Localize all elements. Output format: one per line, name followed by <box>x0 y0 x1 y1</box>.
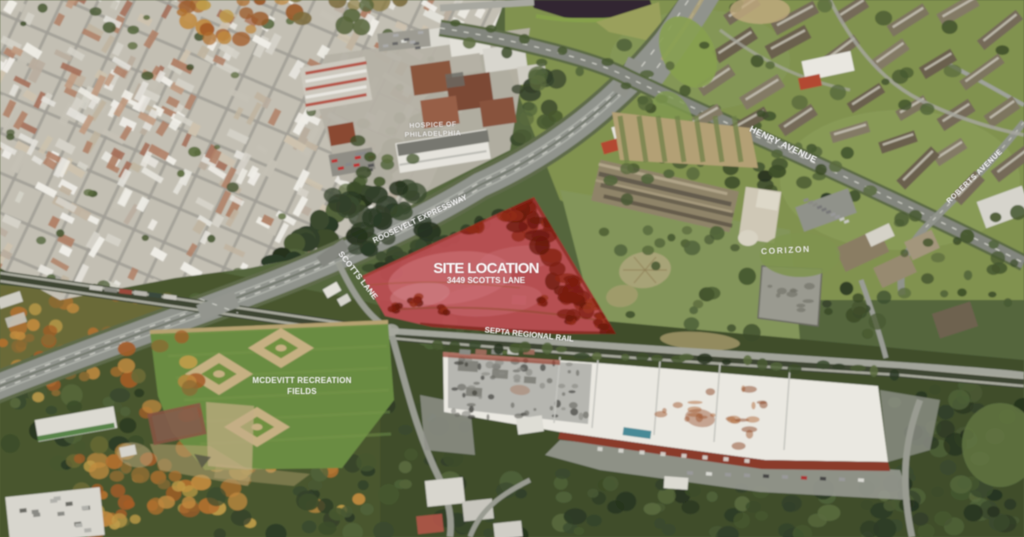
svg-text:3449 SCOTTS LANE: 3449 SCOTTS LANE <box>447 276 526 285</box>
svg-text:SITE LOCATION: SITE LOCATION <box>433 260 539 277</box>
svg-text:MCDEVITT RECREATION: MCDEVITT RECREATION <box>252 376 351 385</box>
svg-text:FIELDS: FIELDS <box>287 387 317 396</box>
